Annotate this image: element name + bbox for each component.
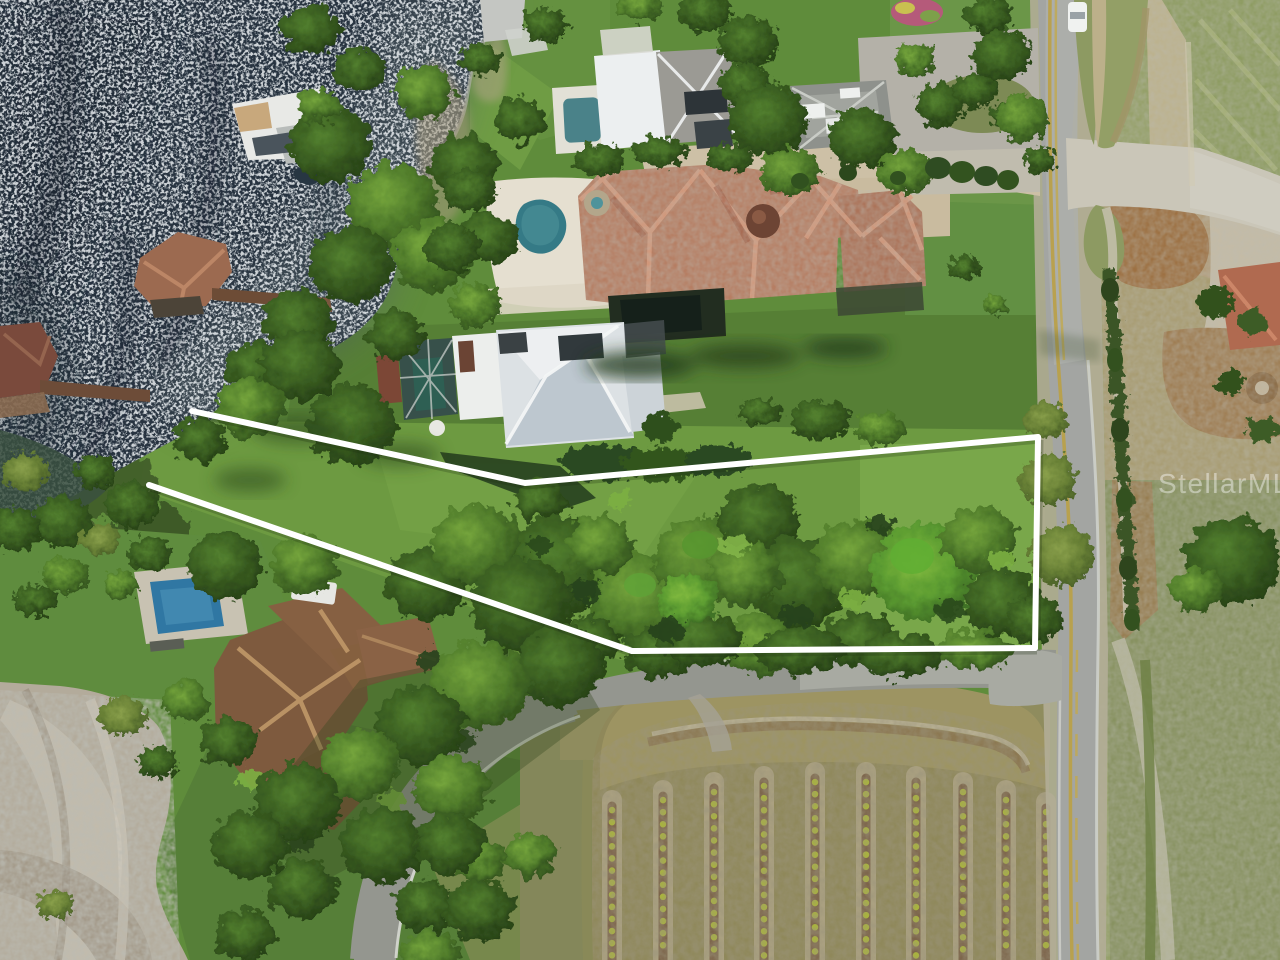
svg-text:StellarMLS: StellarMLS (1158, 468, 1280, 499)
